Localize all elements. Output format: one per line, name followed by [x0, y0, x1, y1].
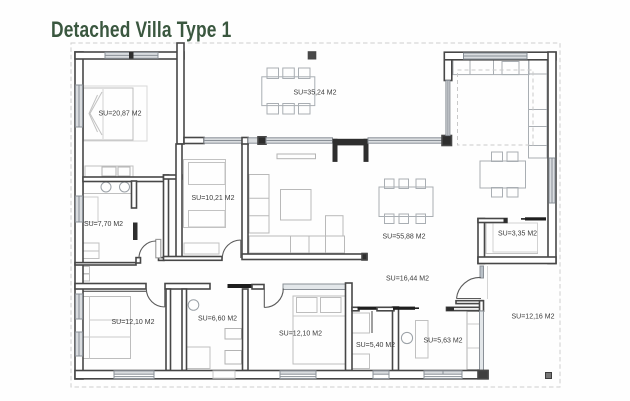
- svg-text:SU=6,60 M2: SU=6,60 M2: [198, 316, 237, 323]
- svg-text:SU=16,44 M2: SU=16,44 M2: [386, 276, 429, 283]
- svg-text:SU=55,88 M2: SU=55,88 M2: [383, 234, 426, 241]
- svg-text:SU=12,16 M2: SU=12,16 M2: [512, 314, 555, 321]
- svg-text:SU=3,35 M2: SU=3,35 M2: [498, 231, 537, 238]
- svg-text:SU=35,24 M2: SU=35,24 M2: [294, 90, 337, 97]
- svg-text:SU=12,10 M2: SU=12,10 M2: [112, 319, 155, 326]
- svg-text:SU=7,70 M2: SU=7,70 M2: [84, 221, 123, 228]
- svg-text:SU=10,21 M2: SU=10,21 M2: [192, 195, 235, 202]
- svg-text:SU=5,63 M2: SU=5,63 M2: [423, 338, 462, 345]
- svg-text:SU=5,40 M2: SU=5,40 M2: [356, 342, 395, 349]
- svg-text:SU=20,87 M2: SU=20,87 M2: [99, 111, 142, 118]
- svg-text:SU=12,10 M2: SU=12,10 M2: [279, 331, 322, 338]
